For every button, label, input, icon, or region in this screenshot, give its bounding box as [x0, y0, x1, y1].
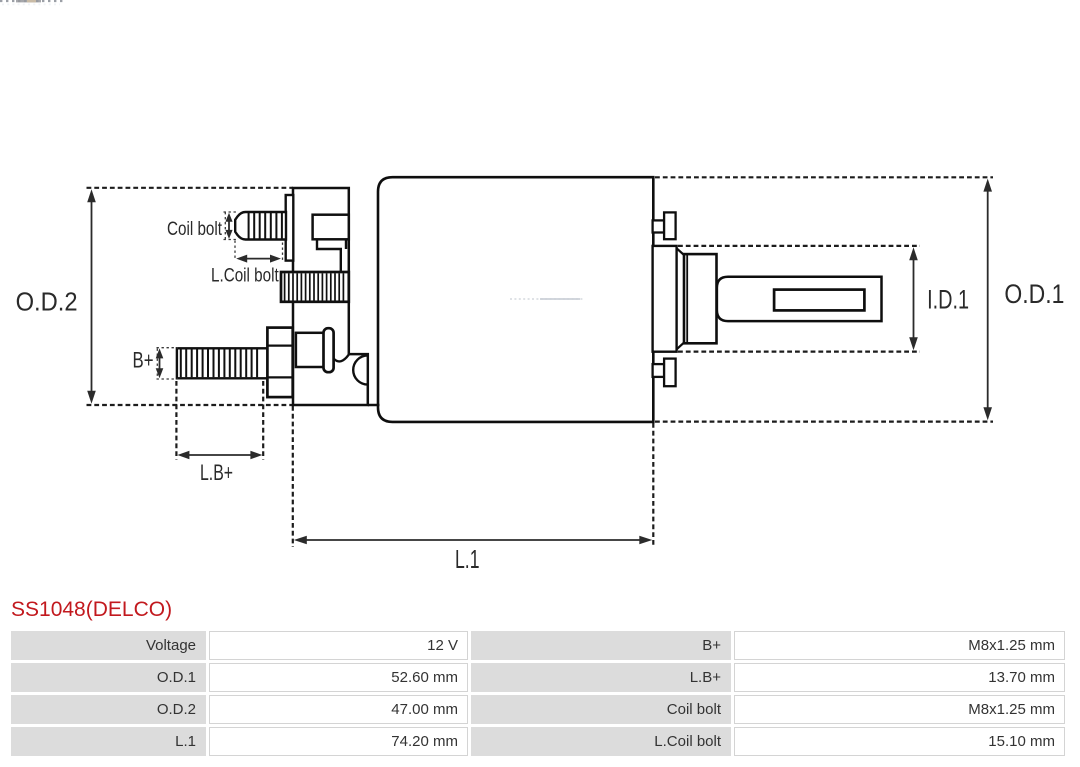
- svg-text:O.D.1: O.D.1: [1004, 279, 1064, 309]
- svg-text:O.D.2: O.D.2: [16, 286, 78, 316]
- svg-text:B+: B+: [133, 348, 154, 373]
- svg-text:I.D.1: I.D.1: [927, 285, 969, 315]
- svg-text:L.B+: L.B+: [200, 460, 233, 485]
- svg-text:L.1: L.1: [455, 544, 480, 574]
- svg-text:L.Coil bolt: L.Coil bolt: [211, 265, 279, 287]
- svg-text:Coil bolt: Coil bolt: [167, 219, 223, 240]
